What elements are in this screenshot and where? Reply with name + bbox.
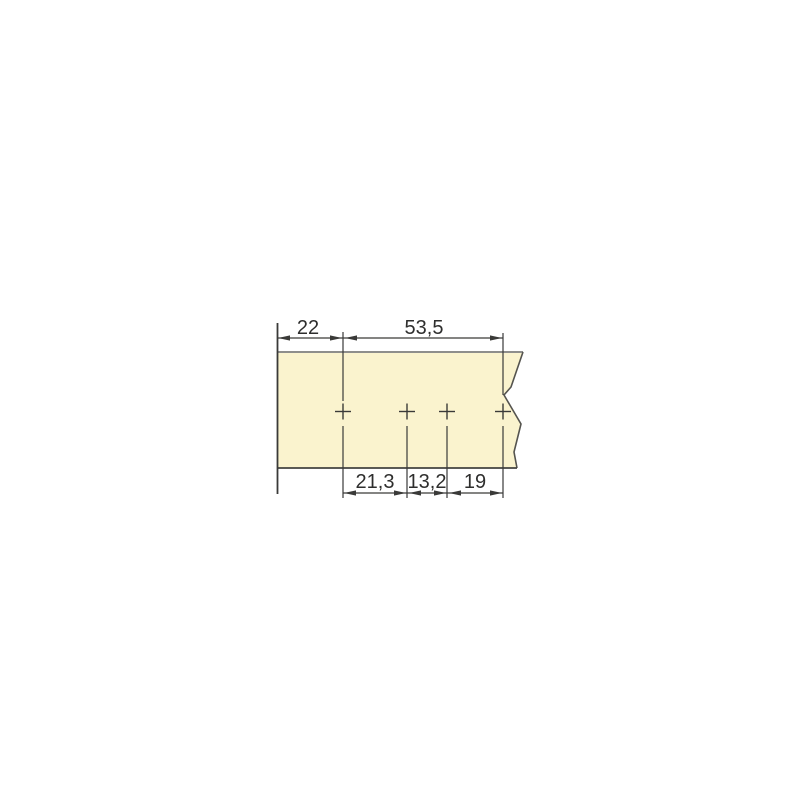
dim-label-hole1-to-hole2: 21,3 xyxy=(356,471,395,493)
arrow-left-icon xyxy=(449,490,461,495)
arrow-left-icon xyxy=(344,490,356,495)
dim-label-edge-to-hole1: 22 xyxy=(297,317,319,339)
arrow-left-icon xyxy=(278,335,290,340)
arrow-right-icon xyxy=(394,490,406,495)
arrow-right-icon xyxy=(330,335,342,340)
dim-label-hole1-to-right: 53,5 xyxy=(405,317,444,339)
dim-label-hole2-to-hole3: 13,2 xyxy=(408,471,447,493)
dim-label-hole3-to-hole4: 19 xyxy=(464,471,486,493)
arrow-left-icon xyxy=(345,335,357,340)
drawing-svg: 22 53,5 21,3 13,2 19 xyxy=(0,0,800,800)
arrow-right-icon xyxy=(490,490,502,495)
technical-drawing: 22 53,5 21,3 13,2 19 xyxy=(0,0,800,800)
panel xyxy=(278,352,523,468)
arrow-right-icon xyxy=(490,335,502,340)
